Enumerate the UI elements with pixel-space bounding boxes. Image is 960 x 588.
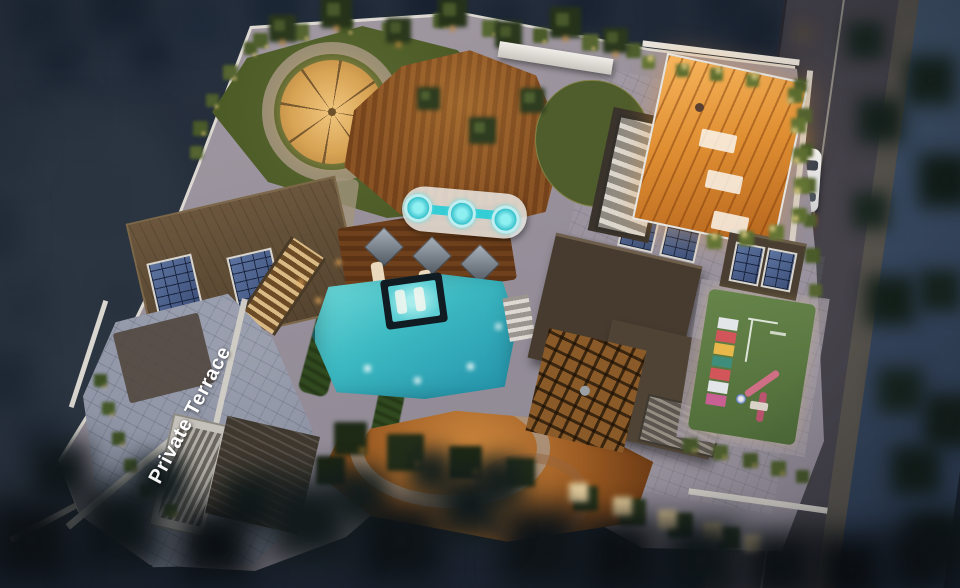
hopscotch-tile — [713, 342, 734, 356]
tree-canopies-left — [0, 0, 1, 1]
play-area-turf — [688, 288, 817, 445]
palm-canopies — [0, 0, 1, 1]
fountain-basin-1 — [403, 193, 433, 223]
jacuzzi-platform — [380, 272, 448, 330]
tree-canopies-top — [0, 0, 1, 1]
hopscotch-tile — [707, 380, 728, 394]
fountain-basin-3 — [490, 204, 520, 234]
canal-bank-trees — [0, 0, 1, 1]
deck-hedge-lights — [0, 0, 1, 1]
person-on-deck — [695, 103, 704, 112]
hedge-bushes-east — [0, 0, 1, 1]
hedge-bushes-southeast — [0, 0, 1, 1]
deck-hedge-glow — [0, 0, 1, 1]
scalloped-garden-arc-lights — [0, 0, 1, 1]
pergola-hub — [328, 108, 336, 116]
hedge-lights-southeast — [0, 0, 1, 1]
patio-tree-rim-lights — [0, 0, 1, 1]
hedge-bushes-north — [0, 0, 1, 1]
terrace-planter-bushes — [0, 0, 1, 1]
hopscotch-tile — [715, 330, 736, 344]
hopscotch-tile — [709, 368, 730, 382]
aerial-villa-render: Private Terrace — [0, 0, 960, 588]
hedge-lights-north — [0, 0, 1, 1]
patio-table — [579, 385, 591, 397]
driveway-curved-path-2 — [470, 453, 590, 543]
play-ball — [736, 394, 746, 404]
palm-highlights — [0, 0, 1, 1]
car-taillight-glow — [0, 0, 1, 1]
palm-uplights — [0, 0, 1, 1]
patio-tree-canopies — [0, 0, 1, 1]
tree-canopies-bottom — [0, 0, 1, 1]
hopscotch-tile — [711, 355, 732, 369]
terrace-planter-lights — [0, 0, 1, 1]
fountain-basin-2 — [447, 199, 477, 229]
hopscotch-tile — [717, 317, 738, 331]
private-terrace-label-text: Private Terrace — [144, 342, 236, 487]
